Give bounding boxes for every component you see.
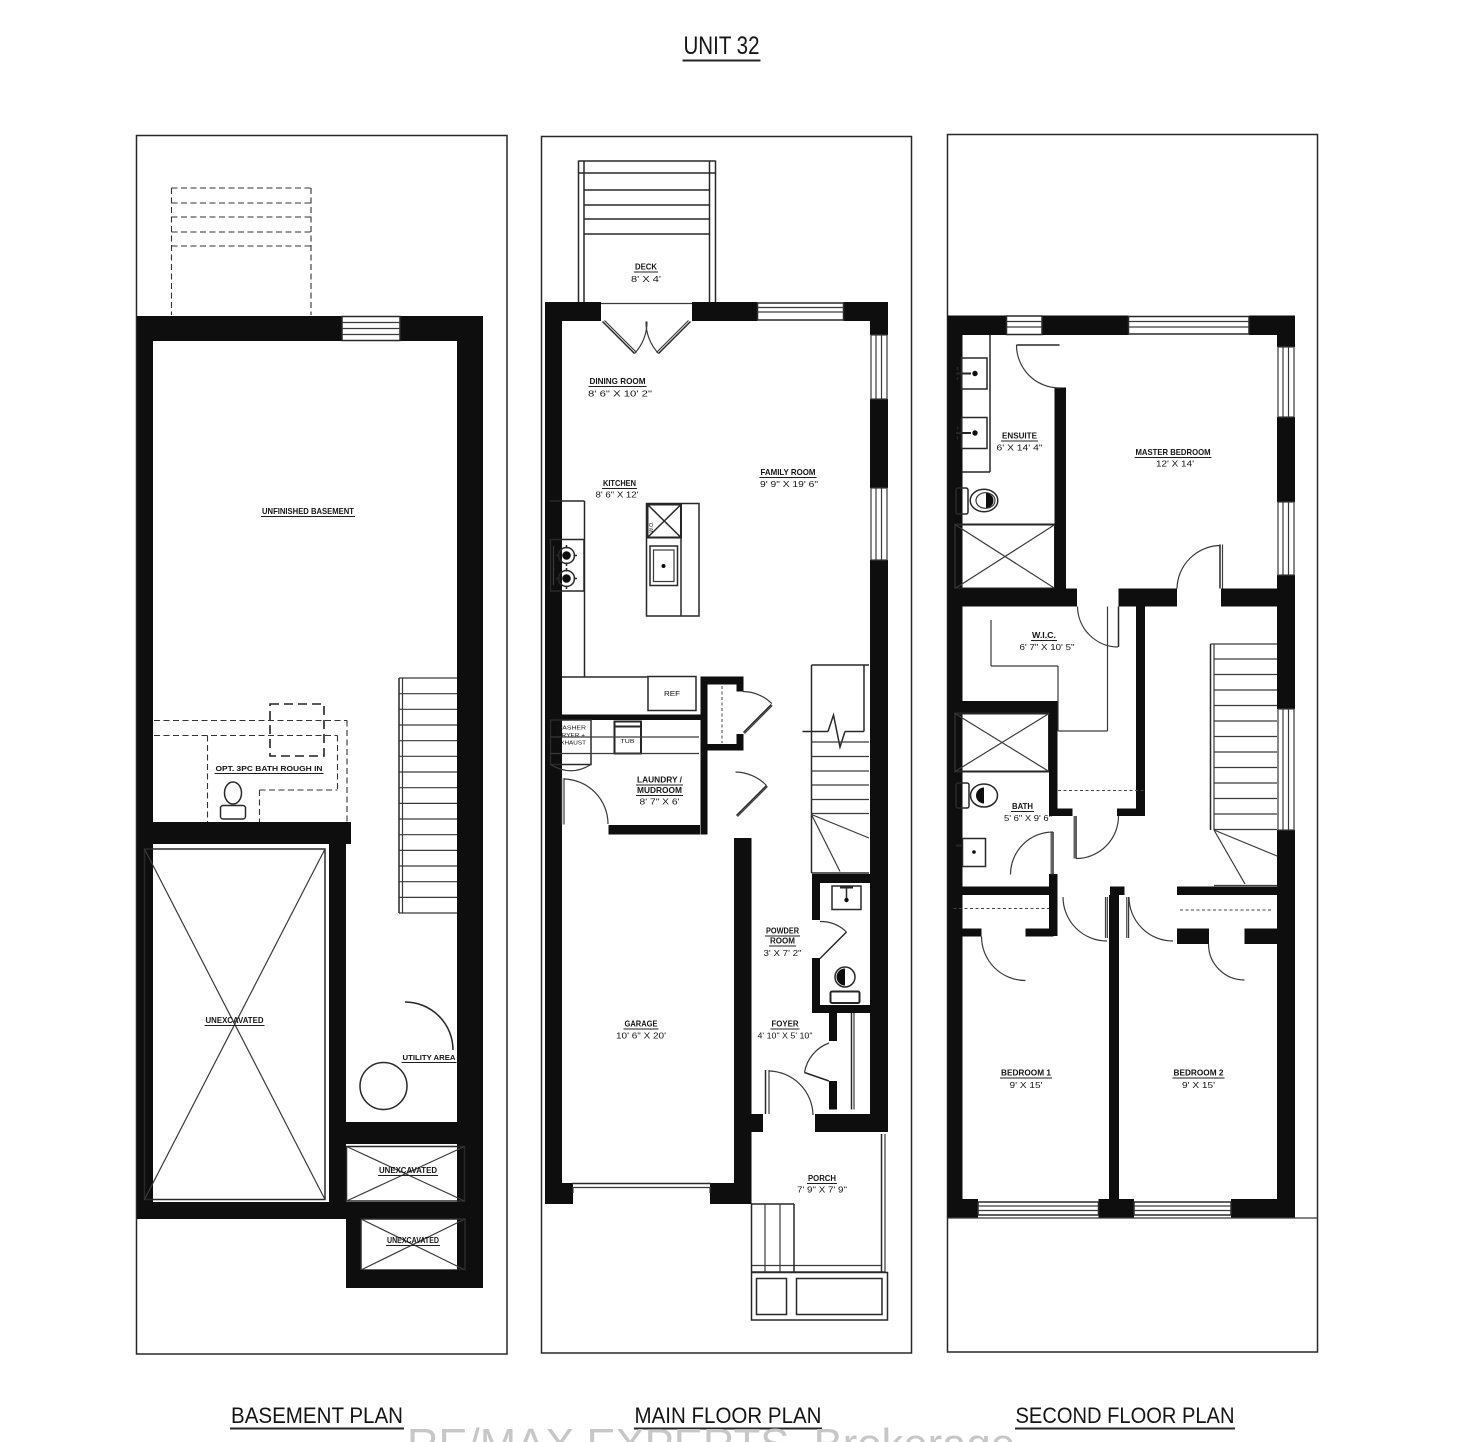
svg-text:POWDER: POWDER — [766, 927, 799, 936]
svg-text:8' 6" X 12': 8' 6" X 12' — [596, 490, 639, 500]
svg-text:REF: REF — [664, 691, 680, 698]
svg-text:6' X 14' 4": 6' X 14' 4" — [997, 443, 1043, 453]
svg-text:12' X 14': 12' X 14' — [1156, 459, 1194, 469]
svg-text:BEDROOM 2: BEDROOM 2 — [1174, 1068, 1224, 1078]
svg-text:DINING ROOM: DINING ROOM — [590, 376, 646, 386]
svg-text:UNIT 32: UNIT 32 — [684, 32, 760, 60]
svg-text:9' X 15': 9' X 15' — [1010, 1080, 1043, 1090]
svg-text:W.O.: W.O. — [649, 521, 655, 532]
svg-text:4' 10" X 5' 10": 4' 10" X 5' 10" — [758, 1032, 813, 1041]
svg-text:W.I.C.: W.I.C. — [1032, 630, 1056, 640]
svg-text:DECK: DECK — [635, 263, 657, 272]
svg-text:RE/MAX EXPERTS, Brokerage: RE/MAX EXPERTS, Brokerage — [407, 1420, 1015, 1442]
svg-text:6' 7" X 10' 5": 6' 7" X 10' 5" — [1020, 642, 1075, 652]
svg-text:10' 6" X 20': 10' 6" X 20' — [616, 1031, 666, 1041]
svg-text:8' X 4': 8' X 4' — [631, 275, 662, 284]
svg-text:UNEXCAVATED: UNEXCAVATED — [387, 1236, 439, 1245]
svg-text:PORCH: PORCH — [808, 1174, 836, 1183]
svg-text:MASTER BEDROOM: MASTER BEDROOM — [1136, 447, 1211, 457]
svg-text:FOYER: FOYER — [772, 1020, 799, 1029]
svg-text:SECOND FLOOR PLAN: SECOND FLOOR PLAN — [1016, 1403, 1235, 1428]
svg-text:KITCHEN: KITCHEN — [603, 478, 636, 488]
svg-text:8' 7" X 6': 8' 7" X 6' — [640, 797, 680, 807]
svg-text:7' 9" X 7' 9": 7' 9" X 7' 9" — [797, 1186, 847, 1195]
svg-text:8' 6" X 10' 2": 8' 6" X 10' 2" — [588, 389, 652, 399]
svg-text:UNFINISHED BASEMENT: UNFINISHED BASEMENT — [262, 506, 355, 516]
svg-text:GARAGE: GARAGE — [625, 1019, 658, 1029]
svg-text:BATH: BATH — [1012, 801, 1033, 811]
svg-text:EXHAUST: EXHAUST — [556, 741, 587, 747]
svg-text:9' X 15': 9' X 15' — [1182, 1080, 1215, 1090]
svg-text:UNEXCAVATED: UNEXCAVATED — [206, 1015, 264, 1025]
svg-text:BASEMENT PLAN: BASEMENT PLAN — [231, 1403, 403, 1428]
svg-text:5' 6" X 9' 6": 5' 6" X 9' 6" — [1004, 813, 1052, 823]
svg-text:ROOM: ROOM — [770, 937, 795, 946]
svg-text:OPT. 3PC BATH ROUGH IN: OPT. 3PC BATH ROUGH IN — [216, 764, 323, 773]
svg-text:3' X 7' 2": 3' X 7' 2" — [764, 949, 802, 958]
svg-text:WASHER: WASHER — [556, 726, 586, 732]
svg-text:DRYER +: DRYER + — [557, 733, 585, 739]
svg-text:MUDROOM: MUDROOM — [637, 785, 682, 795]
svg-text:LAUNDRY /: LAUNDRY / — [637, 775, 683, 785]
svg-text:9' 9" X 19' 6": 9' 9" X 19' 6" — [760, 479, 818, 489]
svg-text:FAMILY ROOM: FAMILY ROOM — [761, 467, 816, 477]
svg-text:UNEXCAVATED: UNEXCAVATED — [379, 1166, 437, 1175]
svg-text:UTILITY AREA: UTILITY AREA — [403, 1053, 457, 1062]
svg-text:TUB: TUB — [621, 739, 635, 745]
svg-text:BEDROOM 1: BEDROOM 1 — [1001, 1068, 1051, 1078]
svg-text:ENSUITE: ENSUITE — [1002, 431, 1037, 441]
